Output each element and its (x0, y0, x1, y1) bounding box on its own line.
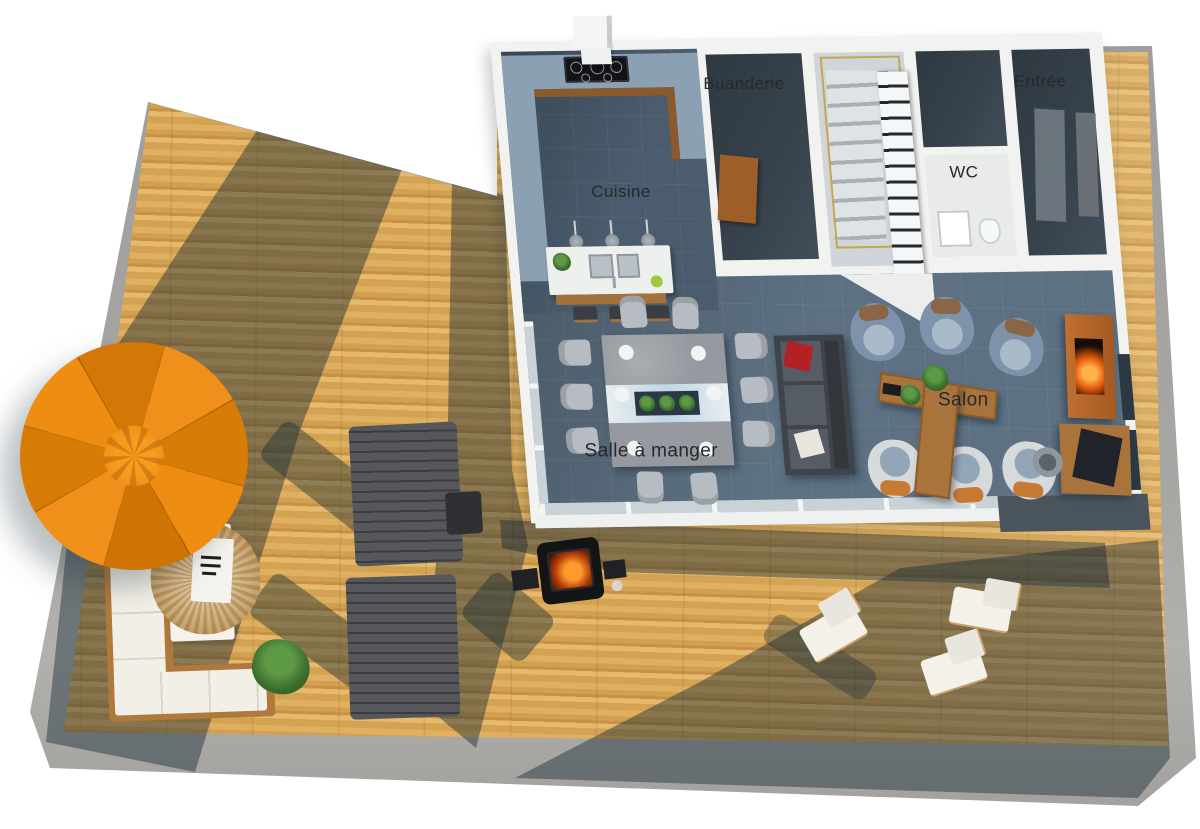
kitchen-island (546, 245, 674, 295)
bar-stool (573, 306, 598, 322)
dining-chair (560, 383, 593, 410)
bbq-plate (611, 580, 623, 592)
barbecue-grill (508, 533, 630, 616)
room-label-wc: WC (949, 163, 978, 183)
fire-screen (1075, 338, 1105, 395)
fireplace (1065, 314, 1117, 420)
armchair (845, 300, 909, 364)
sink-basin (588, 254, 614, 278)
room-label-buanderie: Buanderie (703, 74, 784, 94)
lounger-side-table (445, 491, 483, 535)
dining-chair (690, 472, 720, 505)
dining-chair (742, 421, 775, 448)
counter-wood-edge (534, 87, 675, 97)
plate (618, 345, 634, 360)
room-label-salon: Salon (938, 390, 989, 412)
sofa-cushions (114, 668, 267, 715)
floorplan-3d-view: Cuisine Buanderie Entrée WC Salle à mang… (0, 0, 1200, 829)
room-label-entree: Entrée (1014, 71, 1067, 91)
dining-chair (672, 297, 699, 330)
hallway (915, 50, 1007, 147)
room-label-salle-a-manger: Salle à manger (585, 441, 718, 463)
dining-chair (618, 295, 648, 328)
bbq-side-shelf (603, 559, 627, 580)
wc-toilet (978, 218, 1002, 244)
faucet (612, 276, 616, 288)
bar-stool (645, 305, 670, 321)
dining-chair (558, 339, 592, 365)
computer-monitor (1072, 428, 1122, 487)
plate (690, 346, 706, 361)
plate (614, 387, 630, 402)
sink-basin (616, 254, 640, 278)
front-door (1075, 112, 1099, 217)
buanderie-door (718, 154, 759, 224)
room-label-cuisine: Cuisine (591, 182, 651, 202)
island-plant (552, 253, 572, 271)
sofa (773, 334, 855, 475)
entree-rug (1034, 109, 1066, 222)
plate (706, 385, 722, 400)
red-pillow (783, 341, 813, 372)
table-planter (634, 391, 700, 416)
bbq-fire (546, 547, 595, 592)
chimney-stack (573, 16, 613, 49)
bbq-body (536, 536, 605, 605)
desk (1059, 423, 1132, 495)
wc-sink (937, 210, 972, 246)
dining-chair (740, 376, 775, 404)
dining-chair (734, 333, 768, 359)
roof-overhang (998, 494, 1151, 532)
coffee-table (870, 356, 1002, 503)
dining-chair (637, 471, 665, 503)
island-wood-base (556, 293, 667, 305)
bbq-side-shelf (511, 568, 539, 591)
house-ground-floor: Cuisine Buanderie Entrée WC Salle à mang… (490, 32, 1143, 523)
sun-lounger (346, 574, 461, 720)
armchair (918, 296, 975, 355)
fruit-bowl (650, 275, 663, 287)
armchair (985, 312, 1048, 381)
